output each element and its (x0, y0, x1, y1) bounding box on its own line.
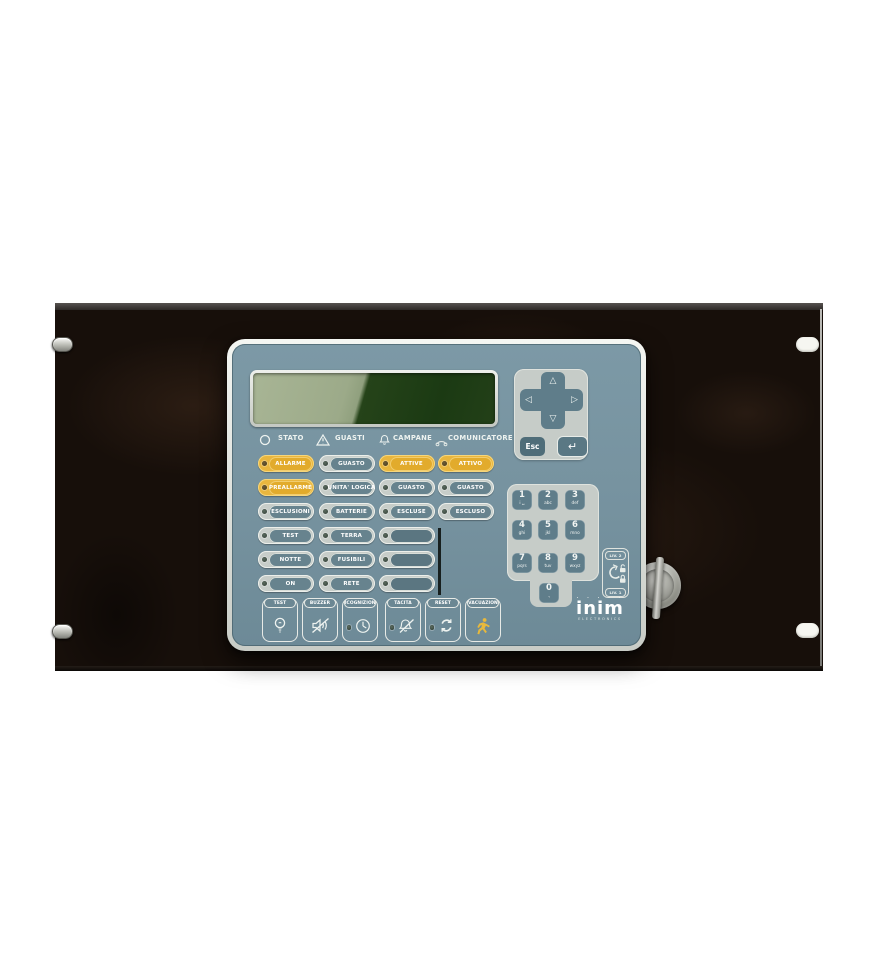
key-5[interactable]: 5jkl (538, 520, 558, 540)
led-dot (323, 461, 328, 466)
evacuazione-button[interactable]: EVACUAZIONE (465, 598, 501, 642)
level-2-label: LIV. 2 (605, 551, 626, 560)
reset-button[interactable]: RESET (425, 598, 461, 642)
key-3[interactable]: 3def (565, 490, 585, 510)
lcd-display-bezel (250, 370, 498, 427)
led-dot (262, 509, 267, 514)
brand-subtitle: ELECTRONICS (561, 617, 639, 621)
enter-button[interactable]: ↵ (557, 436, 588, 457)
led-dot (262, 461, 267, 466)
lcd-screen (253, 373, 495, 424)
arrow-right-button[interactable]: ▷ (566, 392, 583, 408)
column-header-stato: STATO (278, 432, 304, 444)
key-4[interactable]: 4ghi (512, 520, 532, 540)
key-9[interactable]: 9wxyz (565, 553, 585, 573)
column-header-guasti: GUASTI (335, 432, 365, 444)
key-2[interactable]: 2abc (538, 490, 558, 510)
led-indicator-terra: TERRA (319, 527, 375, 544)
led-indicator-campane-guasto: GUASTO (379, 479, 435, 496)
led-dot (323, 581, 328, 586)
buzzer-mute-icon (303, 612, 337, 639)
rack-bottom-edge (55, 666, 823, 671)
led-dot (323, 557, 328, 562)
divider-line (438, 528, 441, 595)
lamp-test-icon (263, 612, 297, 639)
control-panel: STATO GUASTI CAMPANE COMUNICATORE ALLARM… (227, 339, 646, 651)
led-dot (383, 461, 388, 466)
led-dot (442, 509, 447, 514)
led-dot (323, 533, 328, 538)
clock-icon (343, 612, 377, 639)
ricognizione-button[interactable]: RICOGNIZIONE (342, 598, 378, 642)
rack-mount-slot (796, 623, 819, 638)
led-indicator-escluso: ESCLUSO (438, 503, 494, 520)
led-indicator-guasto: GUASTO (319, 455, 375, 472)
led-indicator-unita-logica: UNITA' LOGICA (319, 479, 375, 496)
reset-arrows-icon (426, 612, 460, 639)
led-indicator-allarme: ALLARME (258, 455, 314, 472)
rack-mount-slot (796, 337, 819, 352)
led-dot (383, 485, 388, 490)
led-indicator-comunicatore-guasto: GUASTO (438, 479, 494, 496)
led-indicator-preallarme: PREALLARME (258, 479, 314, 496)
product-photo: STATO GUASTI CAMPANE COMUNICATORE ALLARM… (0, 0, 878, 979)
bell-mute-icon (386, 612, 420, 639)
brand-name: inim (561, 601, 639, 617)
led-indicator-escluse: ESCLUSE (379, 503, 435, 520)
arrow-up-button[interactable]: △ (541, 373, 565, 389)
led-indicator-test: TEST (258, 527, 314, 544)
brand-logo: · · · · · inim ELECTRONICS (561, 596, 639, 621)
key-1[interactable]: 1i ␣ (512, 490, 532, 510)
arrow-down-button[interactable]: ▽ (541, 411, 565, 427)
led-dot (262, 533, 267, 538)
tacita-button[interactable]: TACITA (385, 598, 421, 642)
warning-triangle-icon (316, 431, 330, 450)
key-8[interactable]: 8tuv (538, 553, 558, 573)
led-indicator-batterie: BATTERIE (319, 503, 375, 520)
buzzer-button[interactable]: BUZZER (302, 598, 338, 642)
led-indicator-notte: NOTTE (258, 551, 314, 568)
column-header-campane: CAMPANE (393, 432, 432, 444)
led-dot (383, 509, 388, 514)
key-0[interactable]: 0., (539, 583, 559, 603)
led-dot (323, 509, 328, 514)
arrow-left-button[interactable]: ◁ (520, 392, 537, 408)
esc-button[interactable]: Esc (520, 437, 545, 456)
rack-mount-slot (52, 624, 73, 639)
led-dot (262, 581, 267, 586)
led-indicator-fusibili: FUSIBILI (319, 551, 375, 568)
navigation-pad: △ ◁ ▷ ▽ Esc ↵ (514, 369, 588, 460)
led-dot (383, 533, 388, 538)
led-dot (442, 461, 447, 466)
test-button[interactable]: TEST (262, 598, 298, 642)
led-indicator-blank (379, 551, 435, 568)
led-dot (442, 485, 447, 490)
rack-mount-slot (52, 337, 73, 352)
key-6[interactable]: 6mno (565, 520, 585, 540)
bell-icon (379, 431, 390, 450)
access-level-badge: LIV. 2 LIV. 1 (602, 548, 629, 598)
led-dot (383, 581, 388, 586)
led-indicator-rete: RETE (319, 575, 375, 592)
led-indicator-esclusioni: ESCLUSIONI (258, 503, 314, 520)
led-dot (383, 557, 388, 562)
led-dot (262, 557, 267, 562)
column-header-comunicatore: COMUNICATORE (448, 432, 513, 444)
status-led-icon (259, 431, 271, 450)
led-indicator-attive: ATTIVE (379, 455, 435, 472)
phone-icon (435, 433, 448, 452)
led-indicator-attivo: ATTIVO (438, 455, 494, 472)
evacuation-runner-icon (466, 612, 500, 639)
key-turn-icon (605, 561, 627, 591)
led-dot (262, 485, 267, 490)
led-indicator-on: ON (258, 575, 314, 592)
key-7[interactable]: 7pqrs (512, 553, 532, 573)
led-indicator-blank (379, 575, 435, 592)
led-indicator-blank (379, 527, 435, 544)
